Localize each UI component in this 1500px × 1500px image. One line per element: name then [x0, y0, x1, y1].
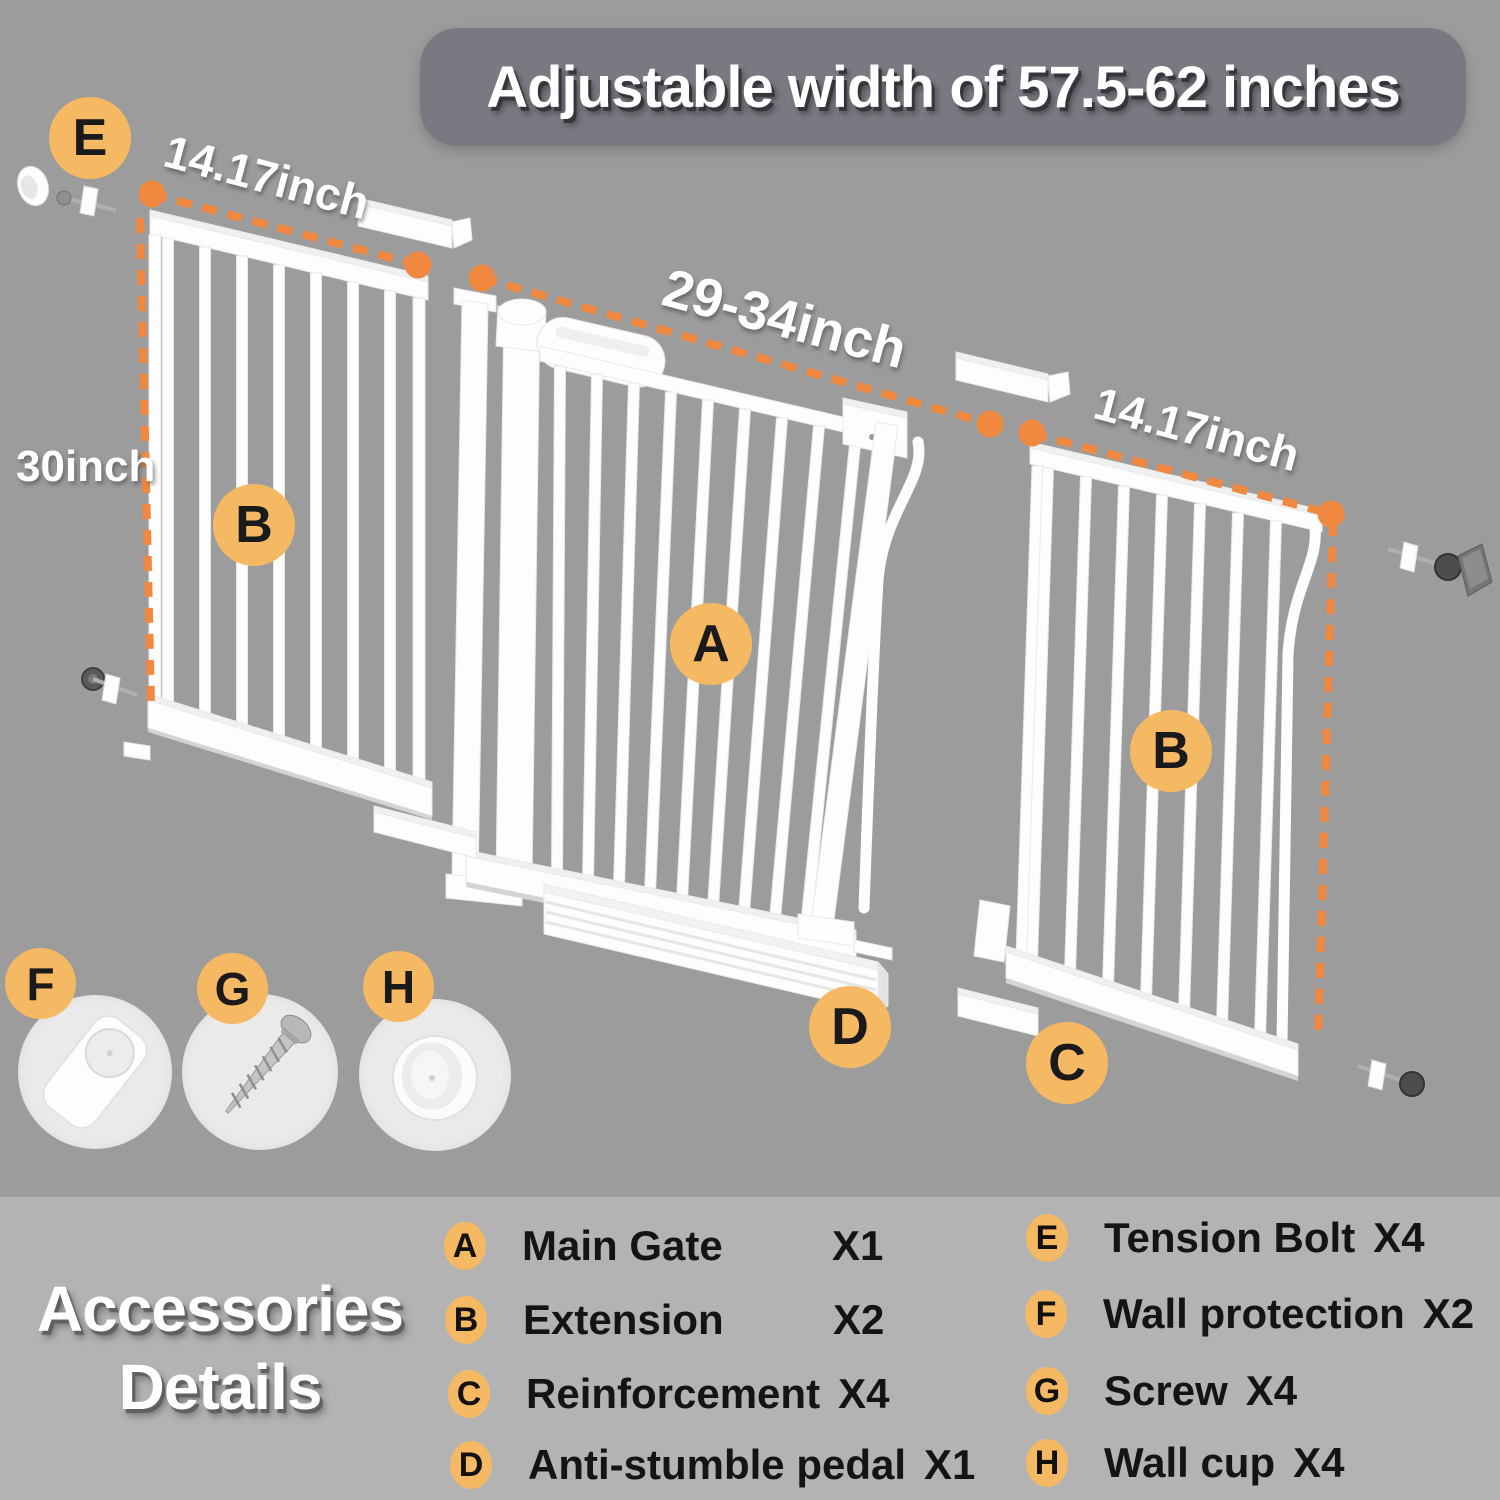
legend-qty-extension: X2: [833, 1296, 884, 1344]
legend-qty-main-gate: X1: [832, 1222, 883, 1270]
legend-item-reinforcement: C Reinforcement X4: [448, 1370, 889, 1418]
banner-title: Adjustable width of 57.5-62 inches: [486, 54, 1400, 121]
legend-name-wall-protection: Wall protection: [1103, 1290, 1405, 1338]
legend-item-main-gate: A Main Gate X1: [444, 1222, 883, 1270]
legend-item-screw: G Screw X4: [1026, 1367, 1297, 1415]
legend-item-wall-cup: H Wall cup X4: [1026, 1439, 1345, 1487]
gate-product-infographic: Adjustable width of 57.5-62 inches 14.17…: [0, 0, 1500, 1500]
screw-photo-circle: [182, 994, 338, 1150]
marker-main-gate: A: [670, 603, 752, 685]
legend-marker-b: B: [445, 1296, 487, 1344]
legend-marker-c: C: [448, 1370, 490, 1418]
legend-name-screw: Screw: [1104, 1367, 1228, 1415]
legend-item-extension: B Extension X2: [445, 1296, 884, 1344]
legend-name-main-gate: Main Gate: [522, 1222, 814, 1270]
legend-name-tension-bolt: Tension Bolt: [1104, 1214, 1355, 1262]
dimension-panel-height: 30inch: [16, 442, 155, 492]
marker-wall-protection: F: [5, 948, 76, 1019]
marker-reinforcement: C: [1026, 1022, 1108, 1104]
legend-marker-e: E: [1026, 1214, 1068, 1262]
legend-item-wall-protection: F Wall protection X2: [1025, 1290, 1474, 1338]
marker-extension-right: B: [1130, 710, 1212, 792]
legend-qty-pedal: X1: [924, 1441, 975, 1489]
dimension-left-extension-width: 14.17inch: [159, 124, 376, 230]
legend-name-wall-cup: Wall cup: [1104, 1439, 1275, 1487]
legend-name-extension: Extension: [523, 1296, 815, 1344]
title-banner: Adjustable width of 57.5-62 inches: [420, 28, 1466, 146]
legend-marker-g: G: [1026, 1367, 1068, 1415]
legend-marker-h: H: [1026, 1439, 1068, 1487]
legend-name-reinforcement: Reinforcement: [526, 1370, 820, 1418]
legend-title-line1: Accessories: [0, 1270, 440, 1348]
legend-item-tension-bolt: E Tension Bolt X4: [1026, 1214, 1425, 1262]
legend-qty-screw: X4: [1246, 1367, 1297, 1415]
dimension-right-extension-width: 14.17inch: [1089, 376, 1306, 482]
marker-extension-left: B: [213, 484, 295, 566]
legend-qty-wall-cup: X4: [1293, 1439, 1344, 1487]
legend-marker-d: D: [450, 1441, 492, 1489]
legend-qty-tension-bolt: X4: [1373, 1214, 1424, 1262]
marker-tension-bolt: E: [49, 97, 131, 179]
legend-qty-reinforcement: X4: [838, 1370, 889, 1418]
legend-marker-f: F: [1025, 1290, 1067, 1338]
legend-name-pedal: Anti-stumble pedal: [528, 1441, 906, 1489]
legend-item-pedal: D Anti-stumble pedal X1: [450, 1441, 975, 1489]
legend-title: Accessories Details: [0, 1270, 440, 1426]
dimension-main-gate-width: 29-34inch: [656, 257, 913, 381]
marker-wall-cup: H: [363, 951, 434, 1022]
wall-cup-photo-circle: [359, 999, 511, 1151]
legend-title-line2: Details: [0, 1348, 440, 1426]
marker-pedal: D: [809, 986, 891, 1068]
legend-qty-wall-protection: X2: [1423, 1290, 1474, 1338]
marker-screw: G: [197, 953, 268, 1024]
legend-marker-a: A: [444, 1222, 486, 1270]
